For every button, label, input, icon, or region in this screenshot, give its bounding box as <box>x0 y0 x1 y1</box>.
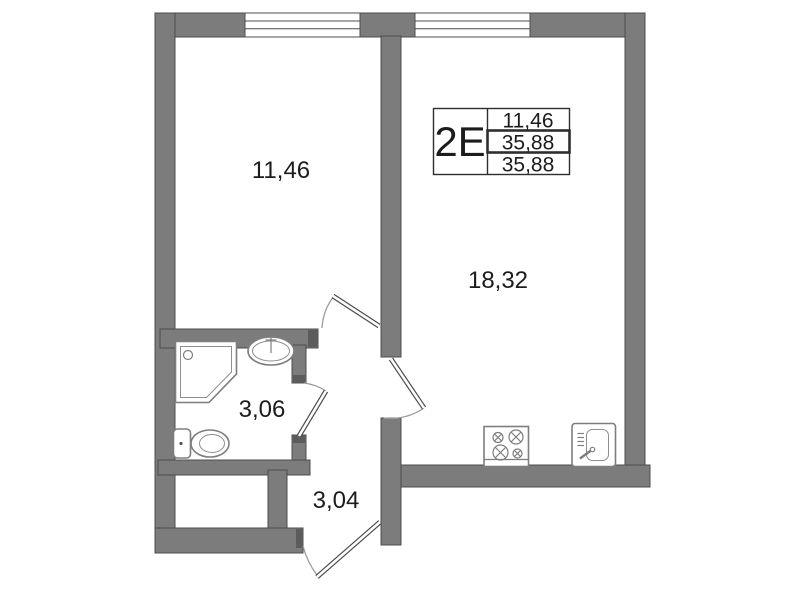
bathroom-area-label: 3,06 <box>239 396 286 423</box>
wall-top-pier <box>360 13 415 37</box>
shower-tray <box>176 342 237 403</box>
wall-divider-upper <box>381 36 401 357</box>
legend-overall-area: 35,88 <box>502 154 555 177</box>
walls <box>155 13 650 553</box>
toilet-icon <box>174 429 230 458</box>
door-leaf <box>333 296 379 326</box>
apartment-type-label: 2Е <box>434 118 485 165</box>
wall-divider-lower <box>381 418 401 545</box>
living-kitchen-area-label: 18,32 <box>468 267 528 294</box>
kitchen-fixtures <box>484 424 616 467</box>
wall-closet-right <box>268 470 287 528</box>
room-door <box>322 296 379 328</box>
door-leaf <box>317 522 380 577</box>
door-swing-arc <box>384 408 424 418</box>
floor-plan: 2Е 11,46 35,88 35,88 11,46 18,32 3,06 3,… <box>0 0 799 600</box>
window-2 <box>415 13 530 37</box>
jamb-bathroom-door-bottom <box>293 435 305 443</box>
floor-plan-drawing: 2Е 11,46 35,88 35,88 11,46 18,32 3,06 3,… <box>0 0 799 600</box>
window-frame <box>415 13 530 37</box>
room-area-label: 11,46 <box>252 157 310 184</box>
legend-table: 2Е 11,46 35,88 35,88 <box>434 109 570 177</box>
wall-kitchen-bottom <box>401 465 650 487</box>
door-swing-arc <box>322 296 334 328</box>
toilet-button <box>179 442 182 445</box>
living-room-door <box>384 359 424 418</box>
kitchen-sink-icon <box>572 424 616 467</box>
shower-icon <box>176 342 237 403</box>
entrance-door <box>303 522 380 577</box>
legend-total-area: 35,88 <box>502 132 555 155</box>
legend-living-area: 11,46 <box>503 110 554 133</box>
jamb-room-door <box>308 330 318 347</box>
window-frame <box>245 13 360 37</box>
wall-bottom-left <box>155 528 303 553</box>
window-1 <box>245 13 360 37</box>
toilet-bowl <box>191 430 229 457</box>
door-swing-arc <box>303 546 317 575</box>
hallway-area-label: 3,04 <box>313 487 360 514</box>
wall-right <box>625 13 645 475</box>
jamb-bathroom-door-top <box>293 375 305 383</box>
door-leaf <box>299 391 326 436</box>
door-leaf <box>391 359 424 408</box>
jamb-entrance-door <box>296 529 303 548</box>
stove-icon <box>484 427 529 467</box>
door-swing-arc <box>304 383 326 391</box>
bathroom-door <box>299 383 326 436</box>
